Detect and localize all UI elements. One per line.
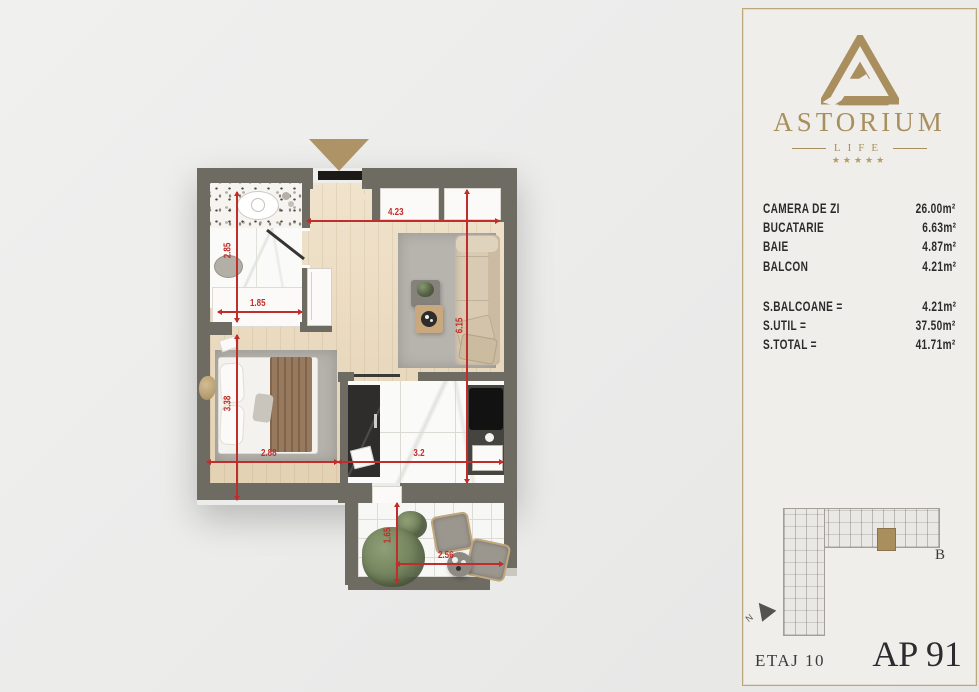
dimension-line [218, 311, 302, 313]
room-label: BALCON [763, 258, 808, 274]
wall [197, 322, 232, 335]
dimension-label: 3.2 [413, 448, 424, 459]
total-row: S.UTIL = 37.50m² [763, 315, 956, 334]
balcony-chair [430, 511, 474, 555]
room-label: CAMERA DE ZI [763, 200, 840, 216]
apartment-label: AP 91 [872, 633, 962, 675]
room-row: BUCATARIE 6.63m² [763, 217, 956, 236]
dimension-line [466, 190, 468, 483]
dimension-line [338, 461, 503, 463]
room-label: BAIE [763, 238, 789, 254]
tray-cup [425, 315, 429, 319]
floor-label: ETAJ 10 [755, 651, 825, 671]
dimension-label: 2.85 [223, 237, 234, 264]
door-swing-arc [313, 183, 365, 230]
fridge-handle [374, 414, 377, 428]
minimap-wing-left [783, 508, 825, 636]
dimension-line [236, 192, 238, 322]
wall [362, 168, 517, 183]
divider-line [893, 148, 927, 149]
dimension-label: 1.65 [383, 522, 394, 549]
minimap-section-label: B [935, 547, 945, 564]
wardrobe-door-line [311, 272, 312, 320]
dimension-line [396, 503, 398, 583]
total-value: 4.21m² [922, 298, 956, 314]
faucet [485, 433, 494, 442]
bath-accessory [282, 192, 290, 200]
dimension-label: 2.56 [438, 550, 454, 561]
divider-line [792, 148, 826, 149]
bath-accessory [288, 201, 294, 207]
north-label: N [744, 612, 755, 624]
entrance-marker-icon [309, 139, 369, 171]
folded-blanket [252, 393, 274, 423]
dimension-label: 3.38 [223, 390, 234, 417]
wall [197, 483, 345, 500]
dimension-line [307, 220, 499, 222]
north-arrow-icon [752, 597, 777, 621]
info-panel: ASTORIUM LIFE ★★★★★ CAMERA DE ZI 26.00m²… [742, 8, 977, 686]
wall [400, 483, 517, 503]
dimension-line [207, 461, 338, 463]
brand-subname-row: LIFE [743, 142, 976, 154]
serving-tray [421, 311, 437, 327]
total-label: S.TOTAL = [763, 336, 817, 352]
dimension-label: 1.85 [250, 298, 266, 309]
room-row: BALCON 4.21m² [763, 256, 956, 275]
brand-name: ASTORIUM [743, 107, 976, 138]
room-row: CAMERA DE ZI 26.00m² [763, 198, 956, 217]
star-rating: ★★★★★ [743, 155, 976, 166]
room-value: 4.87m² [922, 238, 956, 254]
cooktop [469, 388, 503, 430]
balcony-plant-large [362, 527, 425, 587]
total-row: S.TOTAL = 41.71m² [763, 335, 956, 354]
room-value: 6.63m² [922, 219, 956, 235]
room-row: BAIE 4.87m² [763, 237, 956, 256]
total-label: S.BALCOANE = [763, 298, 843, 314]
total-label: S.UTIL = [763, 317, 806, 333]
sofa-cushion-line [456, 300, 489, 301]
tray-cup [430, 319, 433, 322]
total-row: S.BALCOANE = 4.21m² [763, 296, 956, 315]
total-value: 37.50m² [916, 317, 956, 333]
door-jamb [302, 228, 310, 231]
dimension-line [236, 335, 238, 500]
table-plant [417, 282, 434, 297]
room-label: BUCATARIE [763, 219, 824, 235]
brand-subname: LIFE [834, 142, 885, 154]
tv-console [444, 188, 501, 220]
room-value: 4.21m² [922, 258, 956, 274]
dimension-label: 2.88 [261, 448, 277, 459]
entry-door [318, 171, 362, 180]
balcony-chair [464, 537, 511, 582]
bed-throw [270, 357, 312, 452]
totals-list: S.BALCOANE = 4.21m² S.UTIL = 37.50m² S.T… [763, 296, 956, 354]
dimension-label: 4.23 [388, 207, 404, 218]
wall [197, 168, 313, 183]
wall [340, 381, 348, 483]
room-value: 26.00m² [916, 200, 956, 216]
table-item [456, 566, 461, 571]
wall [504, 168, 517, 505]
brand-logo-icon [821, 35, 899, 107]
dimension-label: 6.15 [455, 312, 466, 339]
sink-drain [251, 198, 265, 212]
room-areas-list: CAMERA DE ZI 26.00m² BUCATARIE 6.63m² BA… [763, 198, 956, 276]
sofa-cushion-line [456, 256, 489, 257]
total-value: 41.71m² [916, 336, 956, 352]
minimap-unit-highlight [877, 528, 896, 551]
dimension-line [396, 563, 503, 565]
sliding-door-track [354, 374, 400, 377]
page: 4.23 2.85 1.85 6.15 3.38 2.88 3.2 1.65 2… [0, 0, 979, 692]
wall [345, 500, 358, 585]
sofa-armrest [456, 236, 498, 252]
